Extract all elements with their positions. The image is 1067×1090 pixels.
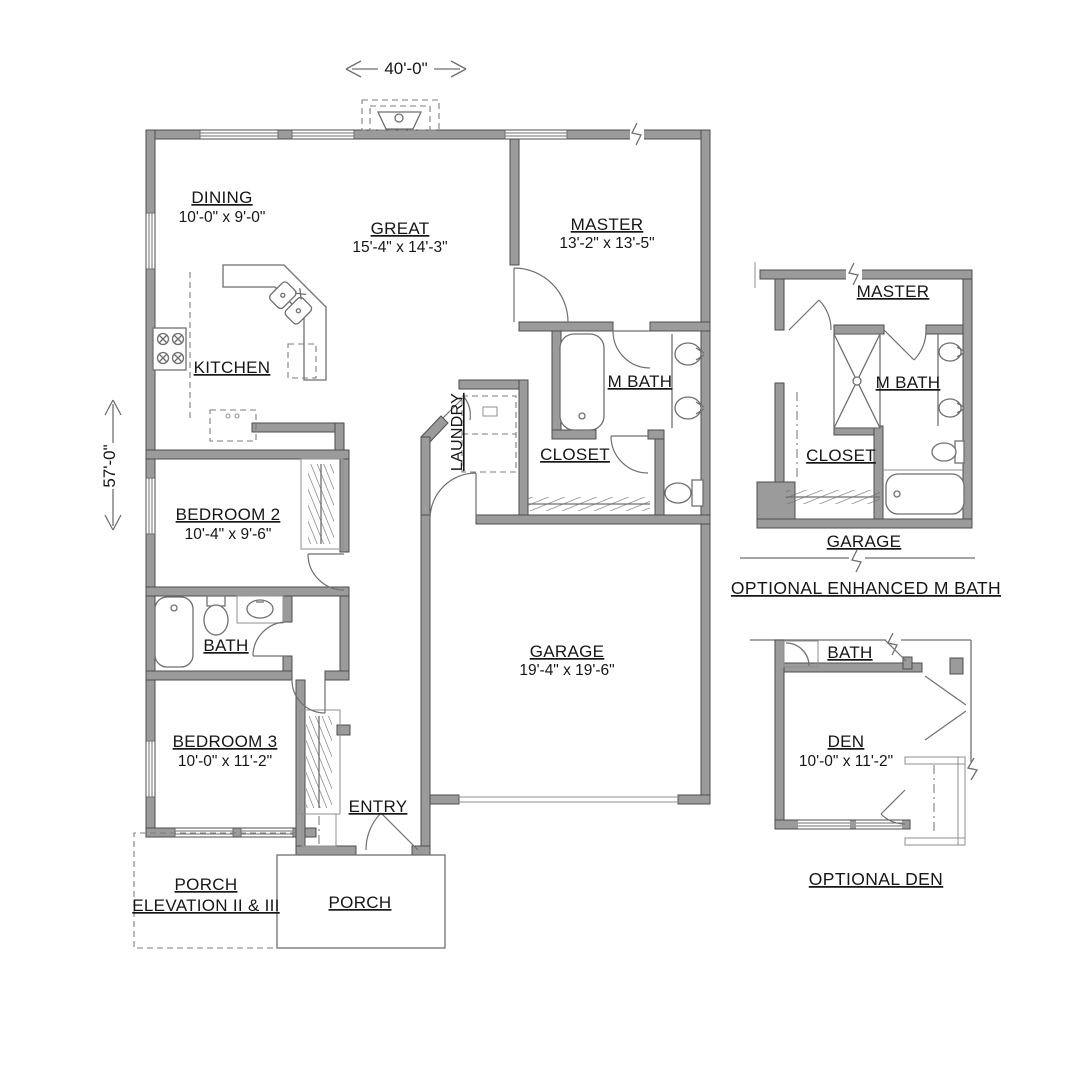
dims-bedroom2: 10'-4" x 9'-6"	[185, 526, 272, 543]
label-porch-elev-2: ELEVATION II & III	[132, 896, 279, 915]
room-labels: DINING 10'-0" x 9'-0" GREAT 15'-4" x 14'…	[132, 188, 672, 915]
sink-icon	[939, 399, 961, 417]
fireplace	[362, 100, 439, 130]
dims-dining: 10'-0" x 9'-0"	[179, 209, 266, 226]
sink-icon	[939, 343, 961, 361]
sink-icon	[675, 397, 701, 419]
label-detail-den: DEN	[828, 732, 865, 751]
label-detail-bath: BATH	[827, 643, 872, 662]
bathtub-icon	[155, 597, 193, 667]
dimension-depth: 57'-0"	[100, 400, 121, 530]
label-entry: ENTRY	[349, 797, 408, 816]
label-porch: PORCH	[329, 893, 392, 912]
label-bath: BATH	[203, 636, 248, 655]
label-bedroom2: BEDROOM 2	[176, 505, 281, 524]
detail-den-labels: BATH DEN 10'-0" x 11'-2" OPTIONAL DEN	[799, 643, 943, 889]
dims-master: 13'-2" x 13'-5"	[559, 235, 654, 252]
dims-detail-den: 10'-0" x 11'-2"	[799, 753, 893, 770]
floor-plan-sheet: DINING 10'-0" x 9'-0" GREAT 15'-4" x 14'…	[0, 0, 1067, 1090]
caption-enhanced-mbath: OPTIONAL ENHANCED M BATH	[731, 578, 1001, 598]
sink-icon	[247, 600, 273, 618]
main-floor-plan: DINING 10'-0" x 9'-0" GREAT 15'-4" x 14'…	[132, 100, 710, 948]
dims-great: 15'-4" x 14'-3"	[352, 239, 447, 256]
floor-plan-drawing: DINING 10'-0" x 9'-0" GREAT 15'-4" x 14'…	[0, 0, 1067, 1090]
bedroom-closets	[300, 459, 343, 846]
label-bedroom3: BEDROOM 3	[173, 732, 278, 751]
overall-width-dim: 40'-0"	[384, 59, 427, 78]
sink-icon	[675, 343, 701, 365]
label-laundry: LAUNDRY	[449, 393, 466, 471]
kitchen-fixtures	[153, 265, 326, 441]
caption-optional-den: OPTIONAL DEN	[809, 869, 943, 889]
dims-bedroom3: 10'-0" x 11'-2"	[178, 753, 272, 770]
stove-icon	[153, 328, 186, 370]
bathtub-icon	[560, 334, 604, 430]
label-garage: GARAGE	[530, 642, 605, 661]
label-detail-master: MASTER	[857, 282, 930, 301]
label-m-bath: M BATH	[608, 372, 673, 391]
laundry-fixtures	[462, 396, 516, 472]
dimension-width: 40'-0"	[346, 59, 466, 78]
bathtub-icon	[886, 474, 964, 514]
label-closet: CLOSET	[540, 445, 610, 464]
refrigerator	[210, 410, 256, 441]
detail-enhanced-mbath: MASTER M BATH CLOSET GARAGE OPTIONAL ENH…	[731, 262, 1001, 598]
detail-optional-den: BATH DEN 10'-0" x 11'-2" OPTIONAL DEN	[750, 633, 977, 889]
toilet-icon	[692, 480, 703, 506]
label-dining: DINING	[191, 188, 252, 207]
label-great: GREAT	[371, 219, 430, 238]
label-detail-m-bath: M BATH	[876, 373, 941, 392]
label-detail-garage: GARAGE	[827, 532, 902, 551]
label-porch-elev-1: PORCH	[175, 875, 238, 894]
label-master: MASTER	[571, 215, 644, 234]
label-kitchen: KITCHEN	[194, 358, 271, 377]
dims-garage: 19'-4" x 19'-6"	[519, 662, 614, 679]
windows	[147, 131, 568, 837]
label-detail-closet: CLOSET	[806, 446, 876, 465]
overall-depth-dim: 57'-0"	[100, 444, 119, 487]
